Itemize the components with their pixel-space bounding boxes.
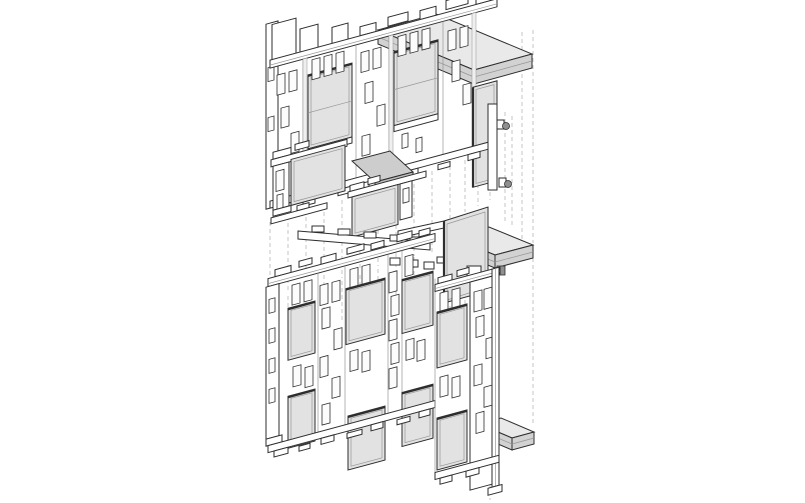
slot-opening — [448, 29, 456, 51]
window-stack-far-right — [437, 304, 467, 470]
slot-opening — [452, 376, 460, 398]
slot-opening — [332, 280, 340, 302]
slot-opening — [391, 294, 399, 316]
slot-opening — [398, 34, 406, 56]
window-stack-left — [288, 301, 315, 448]
panel-cap — [347, 244, 364, 255]
slot-opening — [391, 342, 399, 364]
slot-opening — [416, 137, 422, 153]
slot-opening — [336, 51, 344, 73]
drawing-canvas — [0, 0, 805, 503]
panel-cap — [299, 258, 312, 268]
slot-opening — [474, 290, 482, 312]
slot-opening — [269, 358, 275, 374]
slot-opening — [406, 338, 414, 360]
slot-opening — [305, 365, 313, 387]
slot-opening — [293, 365, 301, 387]
slot-opening — [417, 339, 425, 361]
joint-cap — [364, 232, 376, 238]
slot-opening — [269, 388, 275, 404]
slot-opening — [377, 104, 385, 126]
window-stack-center — [346, 278, 385, 471]
joint-cap — [424, 262, 434, 269]
slot-opening — [289, 70, 297, 92]
slot-opening — [389, 319, 397, 341]
window-glass — [402, 271, 433, 333]
slot-opening — [292, 283, 300, 305]
slot-opening — [312, 58, 320, 80]
bracket-knob — [505, 181, 512, 188]
slot-opening — [484, 385, 492, 407]
slot-opening — [350, 349, 358, 371]
slot-opening — [320, 355, 328, 377]
slot-opening — [268, 116, 274, 132]
slot-opening — [463, 83, 471, 105]
slot-opening — [484, 287, 492, 309]
bracket-knob — [503, 123, 510, 130]
slot-opening — [324, 54, 332, 76]
slot-opening — [320, 283, 328, 305]
panel-return — [389, 35, 393, 171]
slot-opening — [269, 298, 275, 314]
slot-opening — [277, 194, 283, 210]
window-glass — [437, 410, 467, 470]
slot-opening — [403, 188, 409, 204]
slot-opening — [281, 106, 289, 128]
slot-opening — [361, 50, 369, 72]
slot-opening — [402, 133, 408, 149]
middle-left-cluster — [271, 130, 347, 224]
slot-opening — [362, 134, 370, 156]
bracket-channel — [488, 104, 497, 190]
slot-opening — [389, 367, 397, 389]
slot-opening — [405, 254, 413, 276]
joint-cap — [390, 258, 400, 265]
slot-opening — [277, 73, 285, 95]
facade-axonometric-drawing — [0, 0, 805, 503]
slot-opening — [365, 81, 373, 103]
slot-opening — [460, 26, 468, 48]
slot-opening — [334, 328, 342, 350]
slot-opening — [389, 271, 397, 293]
slot-opening — [440, 375, 448, 397]
slot-opening — [322, 307, 330, 329]
slot-opening — [276, 169, 284, 191]
lower-facade-left-section — [266, 225, 435, 493]
slot-opening — [476, 411, 484, 433]
slot-opening — [332, 376, 340, 398]
slot-opening — [322, 403, 330, 425]
joint-cap — [338, 229, 350, 235]
slot-opening — [410, 31, 418, 53]
slot-opening — [373, 47, 381, 69]
slot-opening — [269, 328, 275, 344]
slot-opening — [476, 315, 484, 337]
slot-opening — [362, 350, 370, 372]
slot-opening — [268, 66, 274, 82]
slot-opening — [304, 280, 312, 302]
joint-cap — [312, 226, 324, 232]
end-bracket — [488, 104, 512, 190]
slot-opening — [422, 28, 430, 50]
slot-opening — [474, 364, 482, 386]
slot-opening — [452, 60, 460, 82]
